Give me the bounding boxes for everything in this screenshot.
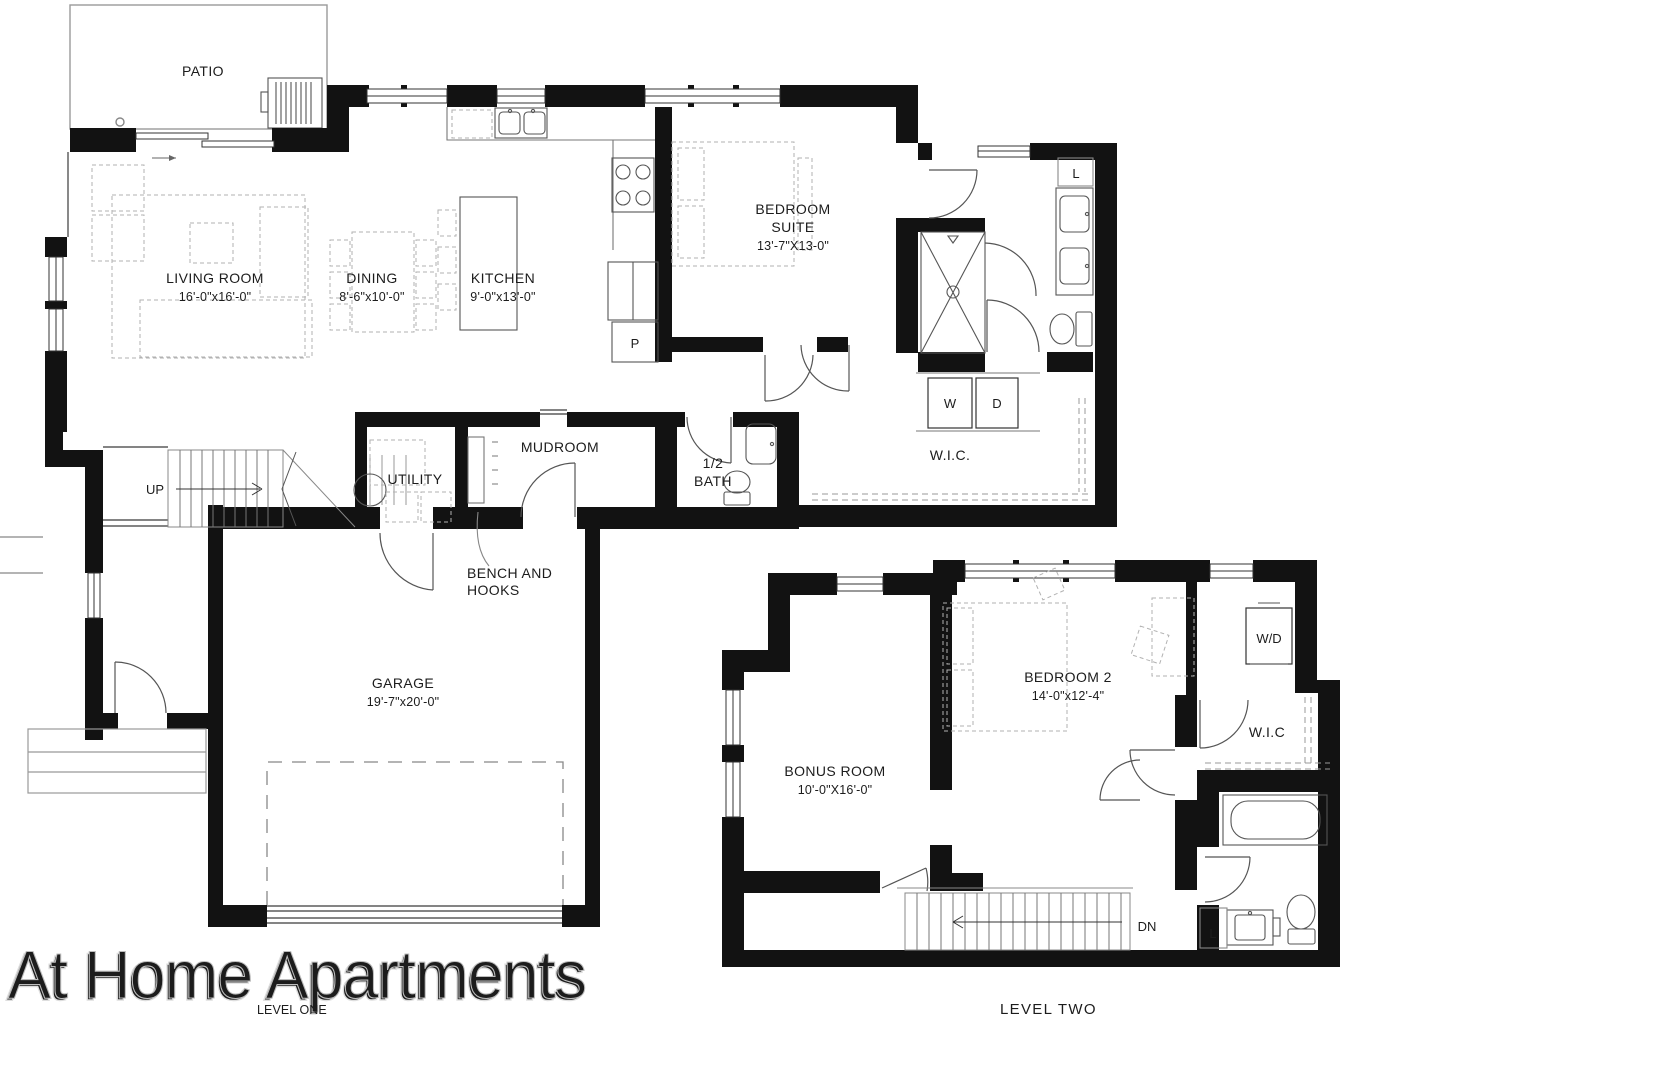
- half-bath-label-2: BATH: [694, 473, 732, 489]
- parking-stall: [267, 762, 563, 905]
- kitchen-label: KITCHEN: [471, 270, 535, 286]
- garage-label: GARAGE: [372, 675, 434, 691]
- kitchen-sink: [495, 108, 547, 138]
- half-bath-fixtures: [724, 424, 776, 505]
- pantry-label: P: [631, 336, 640, 351]
- kitchen-island: [460, 197, 517, 330]
- island-stools: [438, 210, 456, 310]
- bath2-door: [1205, 857, 1250, 902]
- level-two-windows: [726, 564, 1253, 817]
- sofa: [140, 300, 312, 357]
- toilet2: [1287, 895, 1315, 944]
- linen-label-l2: L: [1209, 926, 1216, 941]
- washer-label: W: [944, 396, 957, 411]
- half-bath-sink: [746, 424, 776, 464]
- linen-label-l1: L: [1072, 166, 1079, 181]
- living-room-label: LIVING ROOM: [166, 270, 264, 286]
- bedroom-suite-label-1: BEDROOM: [755, 201, 830, 217]
- bench-hooks-label-1: BENCH AND: [467, 565, 552, 581]
- bedroom2-furniture: [943, 568, 1194, 731]
- up-label: UP: [146, 482, 164, 497]
- half-bath-label-1: 1/2: [703, 455, 724, 471]
- wd-label: W/D: [1256, 631, 1281, 646]
- utility-garage-door: [380, 533, 433, 590]
- bedroom-suite-label-2: SUITE: [771, 219, 814, 235]
- mudroom-garage-door: [521, 463, 575, 517]
- garage-door: [267, 906, 562, 923]
- living-room-dims: 16'-0"x16'-0": [179, 290, 252, 304]
- shower-door: [985, 243, 1036, 296]
- utility-label: UTILITY: [388, 471, 443, 487]
- bedroom-closet-door: [765, 355, 813, 401]
- bedroom-bath-door: [929, 170, 977, 218]
- vanity2: [1227, 910, 1280, 945]
- refrigerator: [608, 262, 658, 320]
- bedroom-suite-dims: 13'-7"X13-0": [757, 239, 829, 253]
- patio-label: PATIO: [182, 63, 224, 79]
- entry-door: [115, 662, 166, 713]
- mudroom-bench: [468, 437, 498, 566]
- level-two-plan: BONUS ROOM 10'-0"X16'-0" BEDROOM 2 14'-0…: [722, 560, 1340, 1018]
- level-two-title: LEVEL TWO: [1000, 1001, 1096, 1018]
- level-one-title: LEVEL ONE: [257, 1003, 327, 1017]
- grill-icon: [261, 78, 322, 128]
- hooks: [492, 442, 498, 484]
- wic-label-l2: W.I.C: [1249, 724, 1285, 740]
- level-one-walls: [45, 85, 1117, 927]
- bed2: [943, 603, 1067, 731]
- level-one-windows: [49, 89, 1030, 618]
- bonus-room-dims: 10'-0"X16'-0": [798, 783, 873, 797]
- bedroom2-door: [1100, 760, 1140, 800]
- garage-fixtures: [267, 762, 563, 923]
- wd-closet-door: [1200, 700, 1248, 748]
- bedroom2-wic-door: [1130, 750, 1175, 795]
- living-room-furniture: [92, 165, 312, 358]
- kitchen-fixtures: [447, 107, 658, 362]
- master-bath-fixtures: [921, 158, 1093, 353]
- watermark-text: At Home Apartments: [8, 937, 586, 1013]
- shower: [921, 232, 985, 353]
- floor-plan-page: At Home Apartments At Home Apartments: [0, 0, 1669, 1080]
- bedroom2-dims: 14'-0"x12'-4": [1032, 689, 1105, 703]
- dryer-label: D: [992, 396, 1001, 411]
- dishwasher: [452, 110, 492, 138]
- sliding-door: [136, 133, 274, 161]
- coffee-table: [190, 223, 233, 263]
- dining-dims: 8'-6"x10'-0": [339, 290, 404, 304]
- stairs-down: [897, 888, 1133, 950]
- bathtub: [1223, 795, 1327, 845]
- floor-plan-canvas: At Home Apartments At Home Apartments: [0, 0, 1669, 1080]
- chaise: [260, 207, 308, 297]
- bath2-fixtures: [1200, 795, 1327, 948]
- double-vanity: [1056, 188, 1093, 295]
- wic-label-l1: W.I.C.: [930, 447, 971, 463]
- kitchen-dims: 9'-0"x13'-0": [470, 290, 535, 304]
- bedroom2-label: BEDROOM 2: [1024, 669, 1112, 685]
- dining-label: DINING: [346, 270, 397, 286]
- bonus-room-label: BONUS ROOM: [784, 763, 885, 779]
- wic-fixtures: [812, 373, 1088, 500]
- front-porch: [28, 729, 206, 793]
- dn-label: DN: [1138, 919, 1157, 934]
- desk-chair: [1131, 626, 1169, 664]
- range: [612, 158, 654, 212]
- master-toilet: [1050, 312, 1092, 346]
- up-arrow: [176, 483, 262, 495]
- bath-wic-door: [987, 300, 1039, 352]
- mudroom-label: MUDROOM: [521, 439, 599, 455]
- bench-hooks-label-2: HOOKS: [467, 582, 520, 598]
- garage-dims: 19'-7"x20'-0": [367, 695, 440, 709]
